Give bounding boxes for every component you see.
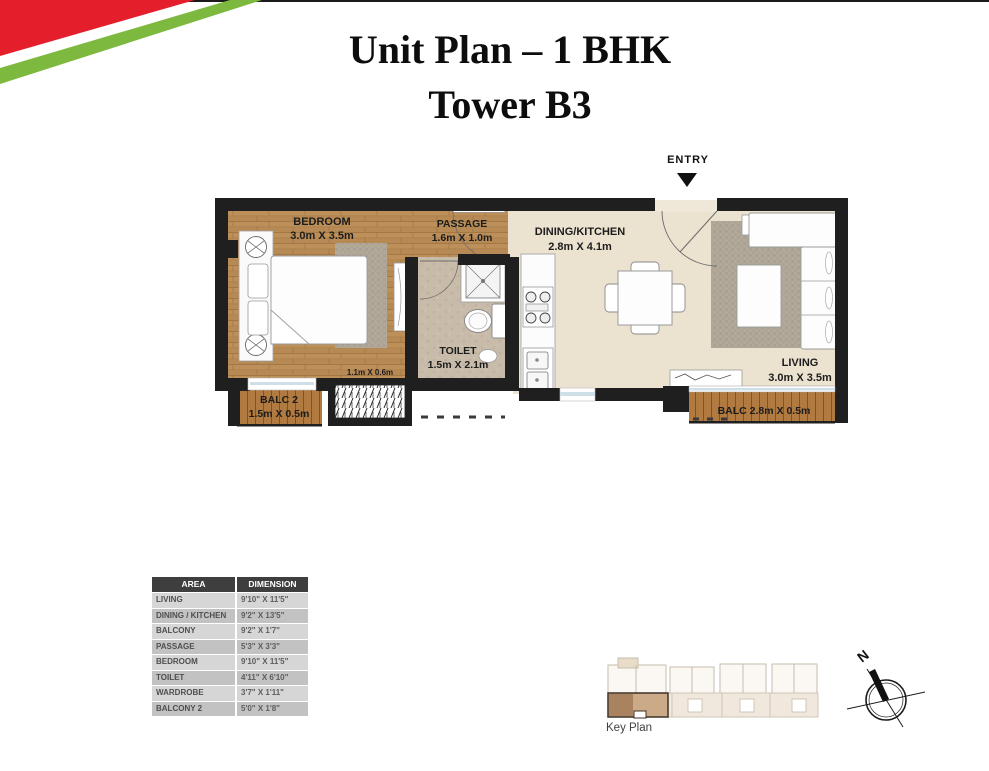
- living-label: LIVING: [782, 357, 819, 369]
- headboard-cushion: [248, 301, 268, 335]
- wardrobe: [335, 385, 405, 418]
- entry-arrow-icon: [677, 173, 697, 187]
- area-cell: WARDROBE: [152, 686, 237, 701]
- page-title-line1: Unit Plan – 1 BHK: [180, 22, 840, 77]
- coffee-table: [737, 265, 781, 327]
- area-table-row: BALCONY 9'2" X 1'7": [152, 624, 308, 639]
- floor-plan: BEDROOM 3.0m X 3.5m PASSAGE 1.6m X 1.0m …: [215, 188, 850, 433]
- living-dim: 3.0m X 3.5m: [768, 372, 832, 384]
- wc-seat: [469, 313, 487, 329]
- bedroom-label: BEDROOM: [293, 216, 350, 228]
- dining-kitchen-label: DINING/KITCHEN: [535, 226, 626, 238]
- page-title-line2: Tower B3: [180, 77, 840, 132]
- sink-drain: [535, 378, 539, 382]
- burner-icon: [526, 313, 536, 323]
- dimension-header-cell: DIMENSION: [237, 577, 308, 592]
- kitchen-window-glass: [560, 392, 595, 396]
- highlighted-unit-room: [609, 694, 633, 716]
- wc-tank: [492, 304, 507, 338]
- shower-drain: [481, 279, 485, 283]
- dimension-cell: 5'0" X 1'8": [237, 702, 308, 717]
- balcony2-dim: 1.5m X 0.5m: [249, 408, 310, 420]
- area-cell: BALCONY: [152, 624, 237, 639]
- dimension-cell: 3'7" X 1'11": [237, 686, 308, 701]
- key-plan-label: Key Plan: [606, 722, 652, 734]
- balcony2-label: BALC 2: [260, 394, 298, 406]
- page: { "title": { "line1": "Unit Plan – 1 BHK…: [0, 0, 989, 771]
- sofa-bolster: [826, 252, 833, 274]
- area-table-row: TOILET 4'11" X 6'10": [152, 671, 308, 686]
- dimension-cell: 9'10" X 11'5": [237, 593, 308, 608]
- page-title: Unit Plan – 1 BHK Tower B3: [180, 22, 840, 132]
- sofa-top: [749, 213, 837, 247]
- key-plan-outline: [608, 658, 817, 695]
- balcony2-glass: [250, 382, 314, 385]
- stove-panel: [526, 304, 548, 311]
- area-table-row: WARDROBE 3'7" X 1'11": [152, 686, 308, 701]
- burner-icon: [540, 292, 550, 302]
- area-cell: PASSAGE: [152, 640, 237, 655]
- area-table-row: DINING / KITCHEN 9'2" X 13'5": [152, 609, 308, 624]
- area-cell: BEDROOM: [152, 655, 237, 670]
- passage-label: PASSAGE: [437, 218, 488, 230]
- area-cell: LIVING: [152, 593, 237, 608]
- dimension-cell: 9'2" X 1'7": [237, 624, 308, 639]
- area-table-header: AREA DIMENSION: [152, 577, 308, 592]
- area-header-cell: AREA: [152, 577, 237, 592]
- balcony-label: BALC 2.8m X 0.5m: [718, 405, 811, 417]
- headboard-cushion: [248, 264, 268, 298]
- sofa-bolster: [826, 287, 833, 309]
- burner-icon: [526, 292, 536, 302]
- highlighted-unit-balcony: [634, 711, 646, 718]
- compass: N: [845, 643, 930, 733]
- burner-icon: [540, 313, 550, 323]
- wardrobe-dim: 1.1m X 0.6m: [347, 368, 393, 377]
- bedroom-dim: 3.0m X 3.5m: [290, 230, 354, 242]
- area-cell: BALCONY 2: [152, 702, 237, 717]
- key-plan: [600, 653, 825, 725]
- sofa-bolster: [826, 321, 833, 343]
- entry-threshold: [652, 200, 720, 212]
- dimension-cell: 5'3" X 3'3": [237, 640, 308, 655]
- ledge-area: [418, 391, 513, 424]
- sink-drain: [535, 358, 539, 362]
- area-table-row: LIVING 9'10" X 11'5": [152, 593, 308, 608]
- dining-kitchen-dim: 2.8m X 4.1m: [548, 241, 612, 253]
- toilet-dim: 1.5m X 2.1m: [428, 359, 489, 371]
- dimension-cell: 9'10" X 11'5": [237, 655, 308, 670]
- area-table-row: PASSAGE 5'3" X 3'3": [152, 640, 308, 655]
- passage-dim: 1.6m X 1.0m: [432, 232, 493, 244]
- compass-north-label: N: [854, 647, 872, 666]
- area-cell: TOILET: [152, 671, 237, 686]
- toilet-label: TOILET: [439, 345, 477, 357]
- entry-label: ENTRY: [648, 154, 728, 166]
- dimension-cell: 4'11" X 6'10": [237, 671, 308, 686]
- balcony-glass: [689, 388, 835, 391]
- area-table-row: BALCONY 2 5'0" X 1'8": [152, 702, 308, 717]
- area-table: AREA DIMENSION LIVING 9'10" X 11'5" DINI…: [152, 577, 308, 716]
- tv-console: [670, 370, 742, 387]
- area-cell: DINING / KITCHEN: [152, 609, 237, 624]
- dimension-cell: 9'2" X 13'5": [237, 609, 308, 624]
- dining-table: [618, 271, 672, 325]
- area-table-row: BEDROOM 9'10" X 11'5": [152, 655, 308, 670]
